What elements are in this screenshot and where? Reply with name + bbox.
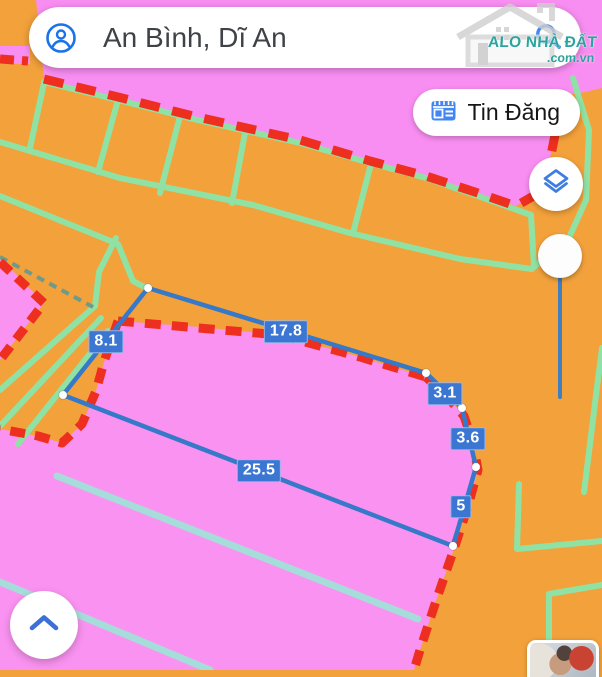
tin-dang-button[interactable]: Tin Đăng bbox=[413, 89, 580, 136]
search-icon[interactable] bbox=[533, 22, 563, 52]
measurement-label: 5 bbox=[450, 495, 471, 518]
account-icon[interactable] bbox=[45, 22, 77, 54]
photo-thumbnail[interactable] bbox=[527, 640, 599, 677]
measurement-label: 25.5 bbox=[237, 459, 281, 482]
measurement-label: 3.6 bbox=[450, 427, 485, 450]
zoom-slider-track[interactable] bbox=[558, 277, 562, 399]
measurement-label: 8.1 bbox=[88, 330, 123, 353]
news-icon bbox=[430, 99, 457, 127]
layers-icon bbox=[540, 166, 572, 203]
layers-button[interactable] bbox=[529, 157, 583, 211]
measurement-label: 17.8 bbox=[264, 320, 308, 343]
chevron-up-icon bbox=[27, 613, 61, 638]
search-bar[interactable]: An Bình, Dĩ An bbox=[29, 7, 581, 68]
measurement-label: 3.1 bbox=[427, 382, 462, 405]
search-input[interactable]: An Bình, Dĩ An bbox=[103, 22, 581, 54]
zoom-slider-handle[interactable] bbox=[538, 234, 582, 278]
expand-button[interactable] bbox=[10, 591, 78, 659]
tin-dang-label: Tin Đăng bbox=[468, 99, 560, 126]
